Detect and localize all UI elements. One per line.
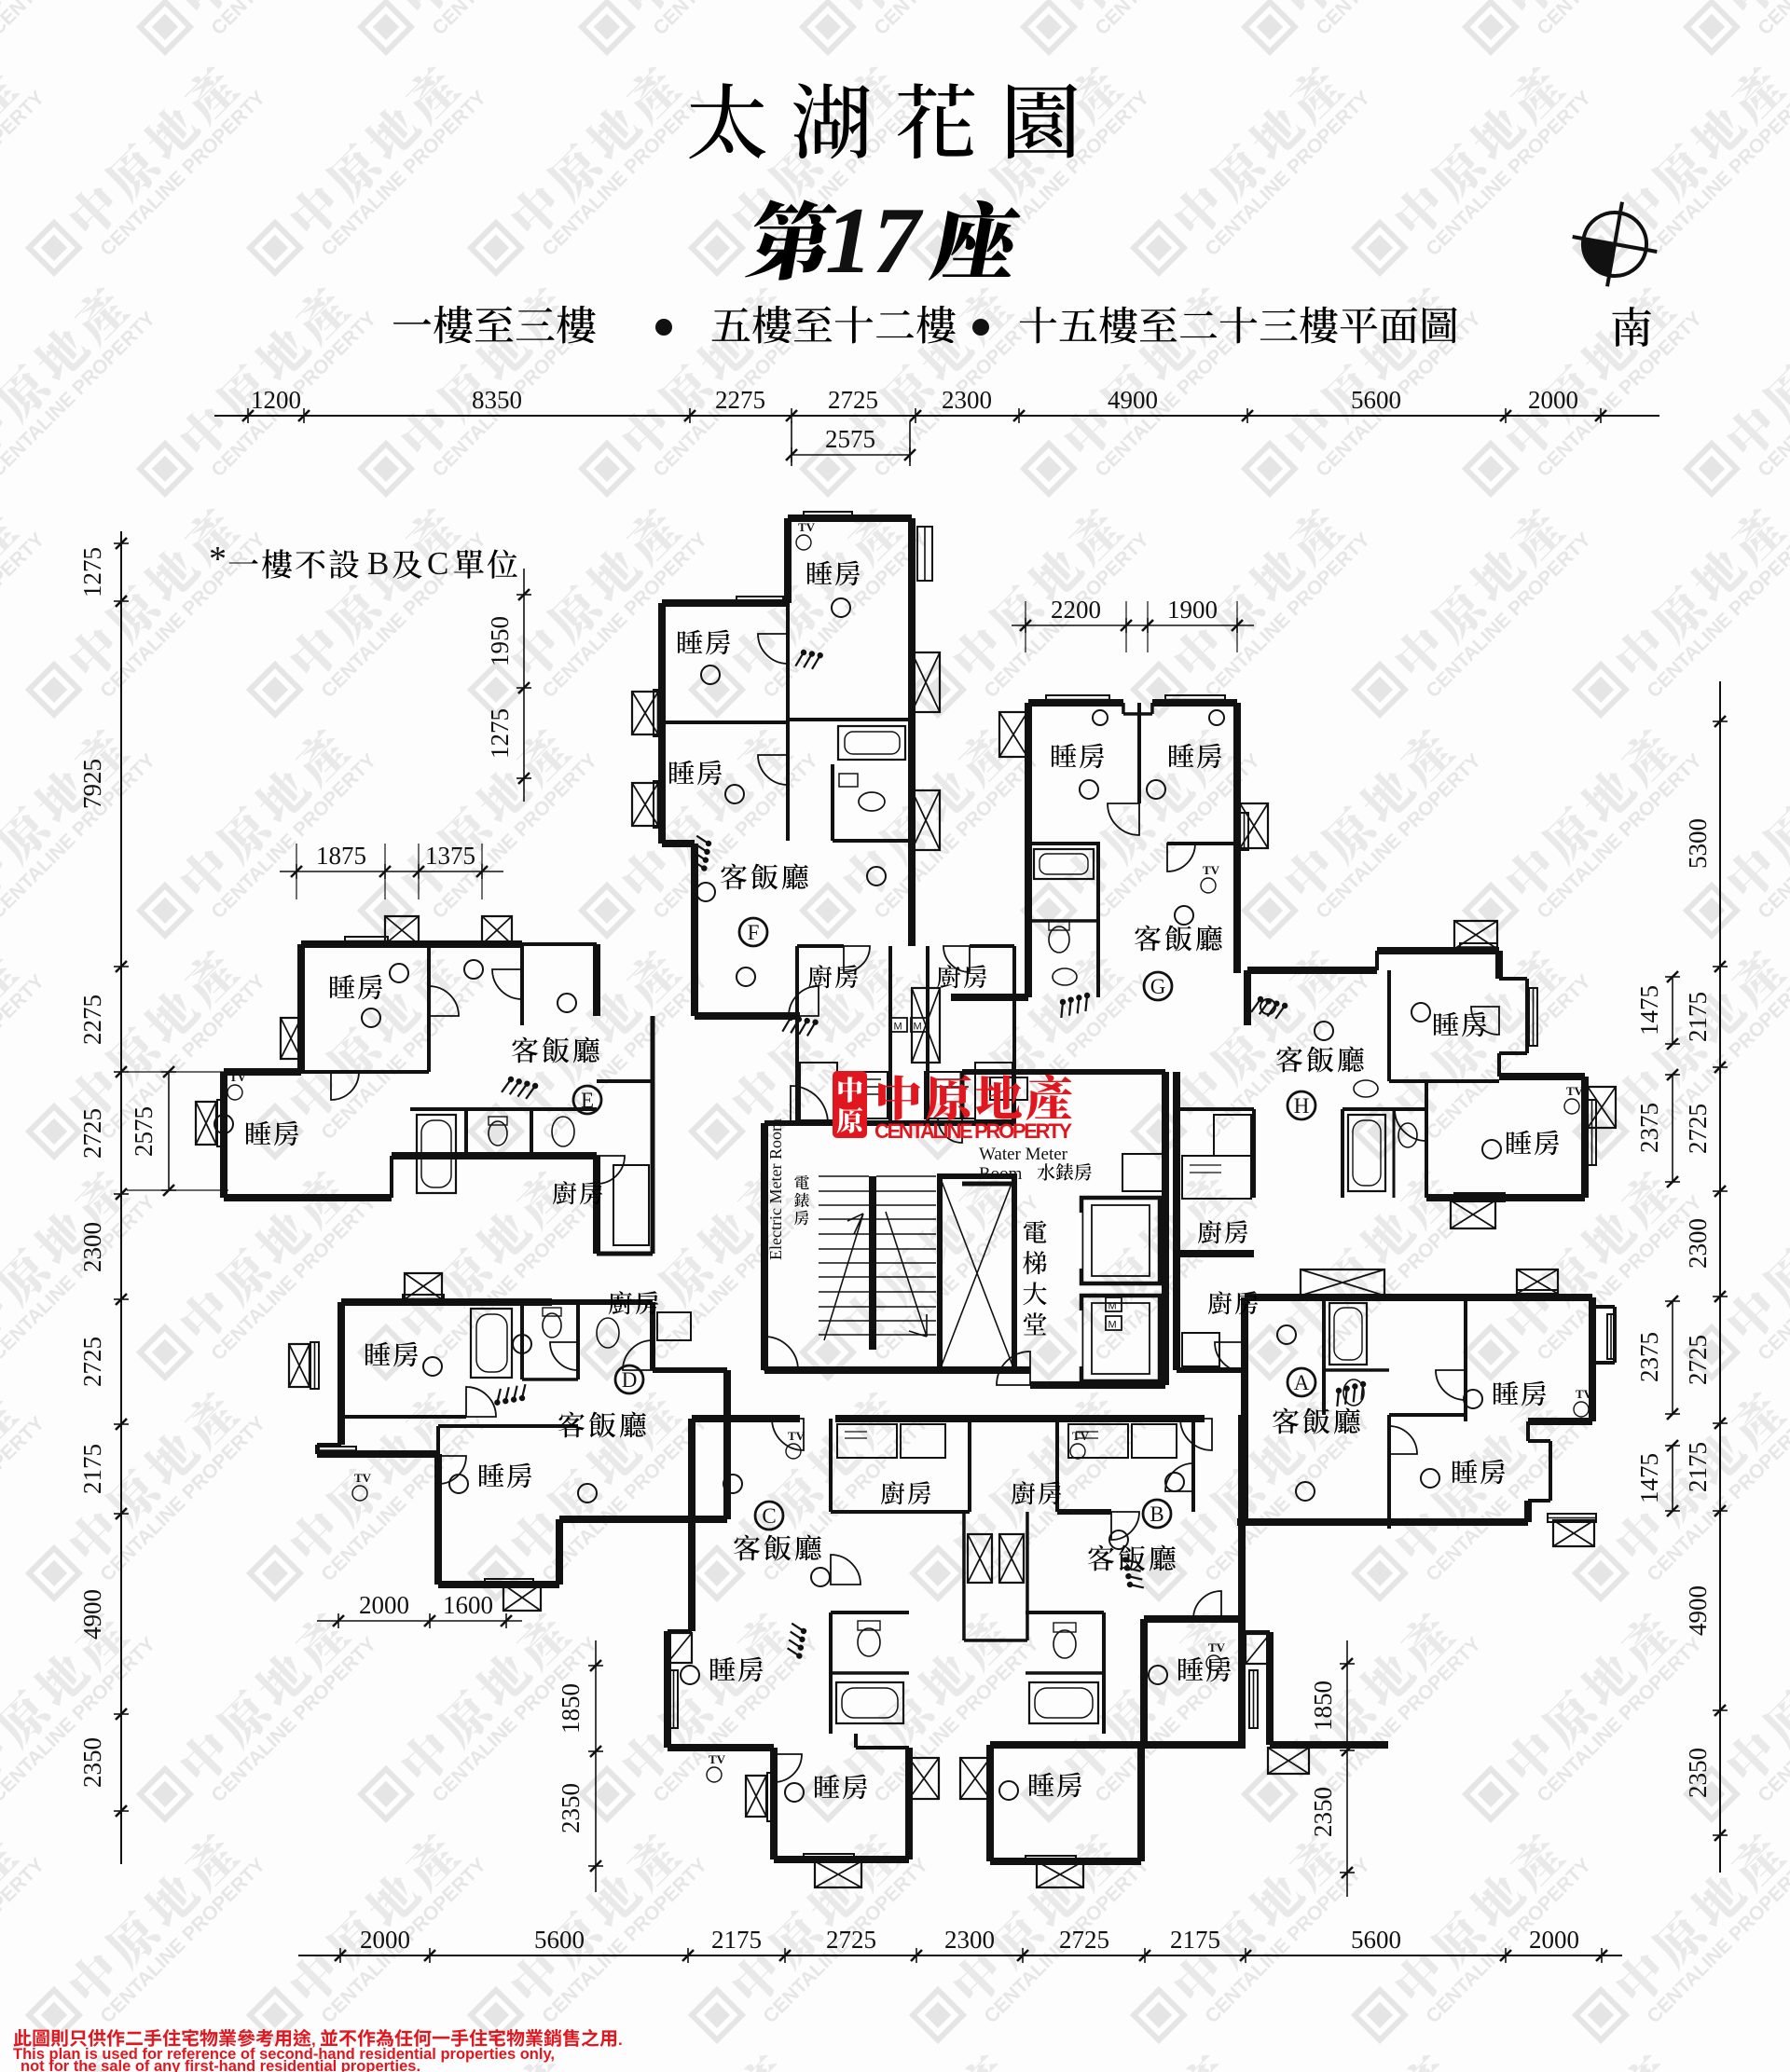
svg-text:1475: 1475 bbox=[1635, 985, 1663, 1036]
svg-text:C: C bbox=[427, 545, 448, 582]
svg-text:1850: 1850 bbox=[1309, 1681, 1337, 1731]
svg-text:M: M bbox=[914, 1022, 922, 1033]
svg-text:1600: 1600 bbox=[443, 1591, 493, 1619]
svg-text:2725: 2725 bbox=[1684, 1104, 1712, 1154]
svg-text:2725: 2725 bbox=[828, 386, 878, 414]
svg-text:2300: 2300 bbox=[942, 386, 992, 414]
svg-text:1850: 1850 bbox=[557, 1683, 585, 1734]
svg-text:E: E bbox=[581, 1089, 594, 1112]
svg-text:2375: 2375 bbox=[1635, 1332, 1663, 1382]
svg-text:TV: TV bbox=[1203, 863, 1220, 877]
svg-text:2300: 2300 bbox=[1684, 1218, 1712, 1269]
svg-text:2350: 2350 bbox=[1684, 1748, 1712, 1798]
svg-text:TV: TV bbox=[709, 1752, 726, 1766]
svg-text:2300: 2300 bbox=[78, 1222, 106, 1272]
svg-text:*: * bbox=[209, 540, 227, 579]
svg-text:2275: 2275 bbox=[715, 386, 765, 414]
svg-text:4900: 4900 bbox=[1108, 386, 1158, 414]
svg-text:B: B bbox=[367, 545, 389, 582]
svg-text:2000: 2000 bbox=[359, 1591, 409, 1619]
svg-text:TV: TV bbox=[788, 1429, 805, 1443]
svg-text:TV: TV bbox=[229, 1070, 247, 1084]
svg-text:1275: 1275 bbox=[78, 547, 106, 597]
svg-text:2725: 2725 bbox=[826, 1926, 876, 1954]
svg-text:Water Meter: Water Meter bbox=[979, 1145, 1068, 1164]
svg-text:TV: TV bbox=[798, 520, 816, 534]
svg-text:1900: 1900 bbox=[1167, 596, 1218, 624]
svg-text:2725: 2725 bbox=[78, 1337, 106, 1387]
svg-text:TV: TV bbox=[1208, 1640, 1226, 1654]
svg-text:2350: 2350 bbox=[1309, 1787, 1337, 1837]
svg-text:2575: 2575 bbox=[130, 1106, 158, 1157]
svg-text:.: . bbox=[618, 2031, 623, 2049]
svg-text:M: M bbox=[894, 1022, 902, 1033]
svg-text:C: C bbox=[762, 1504, 776, 1528]
svg-text:A: A bbox=[1294, 1371, 1310, 1394]
svg-text:TV: TV bbox=[354, 1471, 372, 1485]
svg-text:1200: 1200 bbox=[251, 386, 301, 414]
svg-text:2000: 2000 bbox=[360, 1926, 410, 1954]
svg-text:2175: 2175 bbox=[711, 1926, 762, 1954]
svg-text:2175: 2175 bbox=[1170, 1926, 1220, 1954]
svg-text:H: H bbox=[1294, 1094, 1310, 1118]
svg-text:2300: 2300 bbox=[944, 1926, 995, 1954]
svg-text:5300: 5300 bbox=[1684, 818, 1712, 869]
svg-text:D: D bbox=[622, 1368, 638, 1392]
svg-text:2275: 2275 bbox=[78, 995, 106, 1045]
svg-text:2175: 2175 bbox=[78, 1444, 106, 1494]
svg-text:F: F bbox=[748, 921, 760, 944]
svg-text:5600: 5600 bbox=[534, 1926, 585, 1954]
svg-text:2725: 2725 bbox=[1059, 1926, 1109, 1954]
svg-text:2000: 2000 bbox=[1529, 1926, 1579, 1954]
svg-text:Room: Room bbox=[979, 1164, 1023, 1184]
svg-text:1475: 1475 bbox=[1635, 1453, 1663, 1503]
svg-text:2175: 2175 bbox=[1684, 1442, 1712, 1492]
svg-text:2175: 2175 bbox=[1684, 992, 1712, 1042]
svg-text:not for the sale of any first-: not for the sale of any first-hand resid… bbox=[21, 2058, 420, 2072]
svg-text:7925: 7925 bbox=[78, 759, 106, 809]
svg-text:TV: TV bbox=[1566, 1084, 1584, 1098]
svg-text:2725: 2725 bbox=[78, 1108, 106, 1159]
svg-text:TV: TV bbox=[1576, 1387, 1593, 1401]
svg-text:2000: 2000 bbox=[1528, 386, 1578, 414]
svg-text:CENTALINE PROPERTY: CENTALINE PROPERTY bbox=[874, 1119, 1072, 1143]
svg-text:1375: 1375 bbox=[425, 842, 475, 870]
svg-text:4900: 4900 bbox=[1684, 1585, 1712, 1636]
svg-text:17: 17 bbox=[825, 188, 924, 294]
svg-text:5600: 5600 bbox=[1351, 386, 1401, 414]
svg-text:2725: 2725 bbox=[1684, 1335, 1712, 1385]
svg-text:M: M bbox=[1108, 1320, 1117, 1331]
svg-text:8350: 8350 bbox=[472, 386, 522, 414]
svg-text:2350: 2350 bbox=[78, 1737, 106, 1788]
svg-text:Electric Meter Room: Electric Meter Room bbox=[766, 1118, 785, 1260]
svg-text:M: M bbox=[1108, 1301, 1117, 1312]
svg-text:G: G bbox=[1150, 975, 1166, 998]
svg-text:2200: 2200 bbox=[1051, 596, 1101, 624]
svg-text:4900: 4900 bbox=[78, 1589, 106, 1640]
svg-text:1950: 1950 bbox=[486, 616, 514, 666]
svg-text:TV: TV bbox=[1072, 1429, 1090, 1443]
svg-text:1875: 1875 bbox=[316, 842, 366, 870]
svg-text:2575: 2575 bbox=[825, 425, 875, 453]
svg-text:B: B bbox=[1150, 1503, 1163, 1526]
svg-text:2375: 2375 bbox=[1635, 1103, 1663, 1153]
svg-text:1275: 1275 bbox=[486, 708, 514, 759]
svg-text:5600: 5600 bbox=[1351, 1926, 1401, 1954]
svg-text:2350: 2350 bbox=[557, 1783, 585, 1833]
